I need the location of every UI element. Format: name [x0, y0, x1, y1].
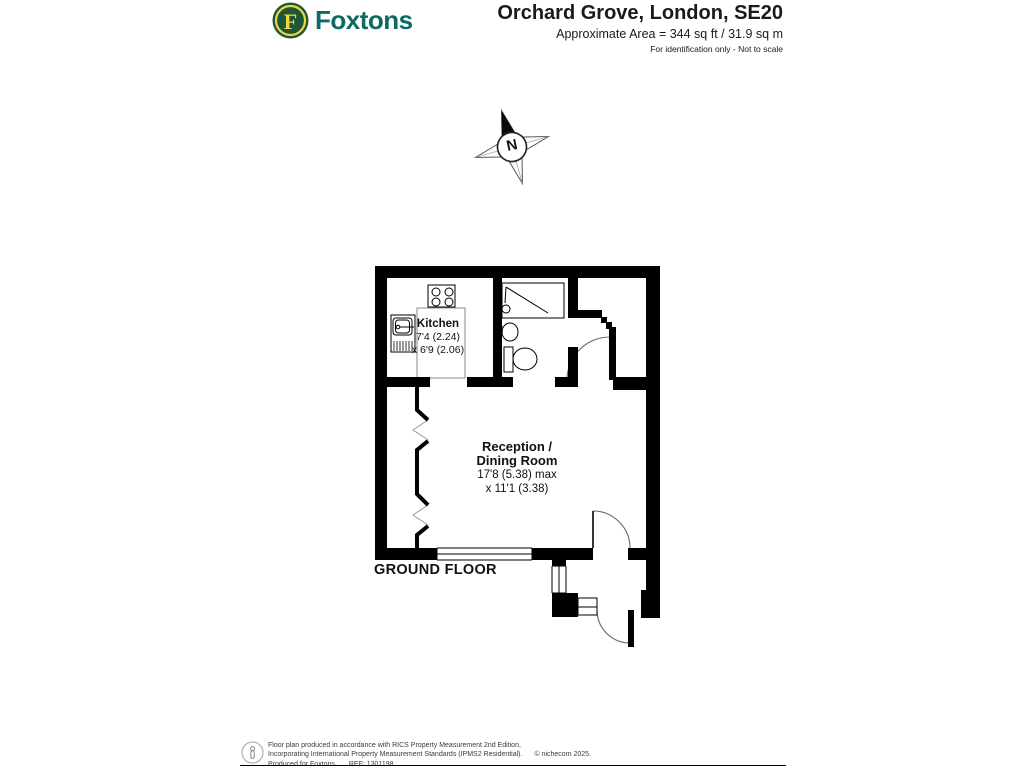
disclaimer-text: For identification only - Not to scale — [650, 44, 783, 54]
kitchen-dim-1: 7'4 (2.24) — [388, 331, 488, 344]
wall-kitchen-bath — [493, 278, 502, 387]
reception-dim-2: x 11'1 (3.38) — [447, 482, 587, 496]
reception-label: Reception / Dining Room 17'8 (5.38) max … — [447, 440, 587, 496]
reception-door-arc — [593, 511, 630, 548]
kitchen-label: Kitchen 7'4 (2.24) x 6'9 (2.06) — [388, 318, 488, 357]
vestibule-corner-left — [552, 593, 578, 617]
kitchen-name: Kitchen — [388, 318, 488, 331]
kitchen-dim-2: x 6'9 (2.06) — [388, 344, 488, 357]
approximate-area-text: Approximate Area = 344 sq ft / 31.9 sq m — [556, 27, 783, 41]
entrance-door-arc — [597, 610, 630, 643]
wall-bath-bottom-right — [555, 377, 578, 387]
bay-window-wall — [417, 387, 428, 549]
footer-standards: Incorporating International Property Mea… — [268, 751, 522, 758]
hall-door-leaf — [609, 327, 616, 380]
logo-monogram: F — [284, 9, 297, 34]
floor-label: GROUND FLOOR — [374, 562, 497, 578]
wall-right — [646, 266, 660, 618]
brand-wordmark: Foxtons — [315, 5, 413, 36]
wall-hall-bottom — [613, 377, 646, 390]
footer-line-3: Produced for Foxtons.REF: 1301198 — [268, 760, 591, 768]
reception-dim-1: 17'8 (5.38) max — [447, 468, 587, 482]
footer-copyright: © nichecom 2025. — [534, 751, 591, 758]
footer-line-2: Incorporating International Property Mea… — [268, 750, 591, 759]
floorplan-page: F Foxtons Orchard Grove, London, SE20 Ap… — [0, 0, 1024, 768]
bottom-rule — [240, 765, 786, 766]
page-title: Orchard Grove, London, SE20 — [497, 2, 783, 25]
footer-text: Floor plan produced in accordance with R… — [268, 741, 591, 768]
wall-left — [375, 266, 387, 560]
vestibule-wall-top — [552, 560, 566, 566]
wall-bath-hall-stub — [568, 347, 578, 378]
wall-bath-bottom-left — [467, 377, 513, 387]
reception-name-2: Dining Room — [447, 454, 587, 468]
vestibule-corner-right — [641, 590, 660, 618]
footer-line-1: Floor plan produced in accordance with R… — [268, 741, 591, 750]
wall-top — [375, 266, 660, 278]
reception-name-1: Reception / — [447, 440, 587, 454]
hall-nib — [575, 310, 602, 318]
hob-icon — [428, 285, 455, 307]
wall-bottom-left — [375, 548, 437, 560]
nichecom-person-icon — [241, 741, 264, 764]
vestibule-side-window — [552, 566, 566, 593]
toilet-icon — [504, 347, 537, 372]
vestibule-front-window — [578, 598, 597, 615]
entrance-door-leaf — [628, 610, 634, 647]
reception-window — [437, 548, 532, 560]
wall-kitchen-bottom — [387, 377, 430, 387]
shower-icon — [502, 283, 564, 318]
foxtons-logo-icon: F — [272, 2, 309, 39]
wall-bottom-stub — [628, 548, 646, 560]
wall-bottom-mid — [532, 548, 593, 560]
